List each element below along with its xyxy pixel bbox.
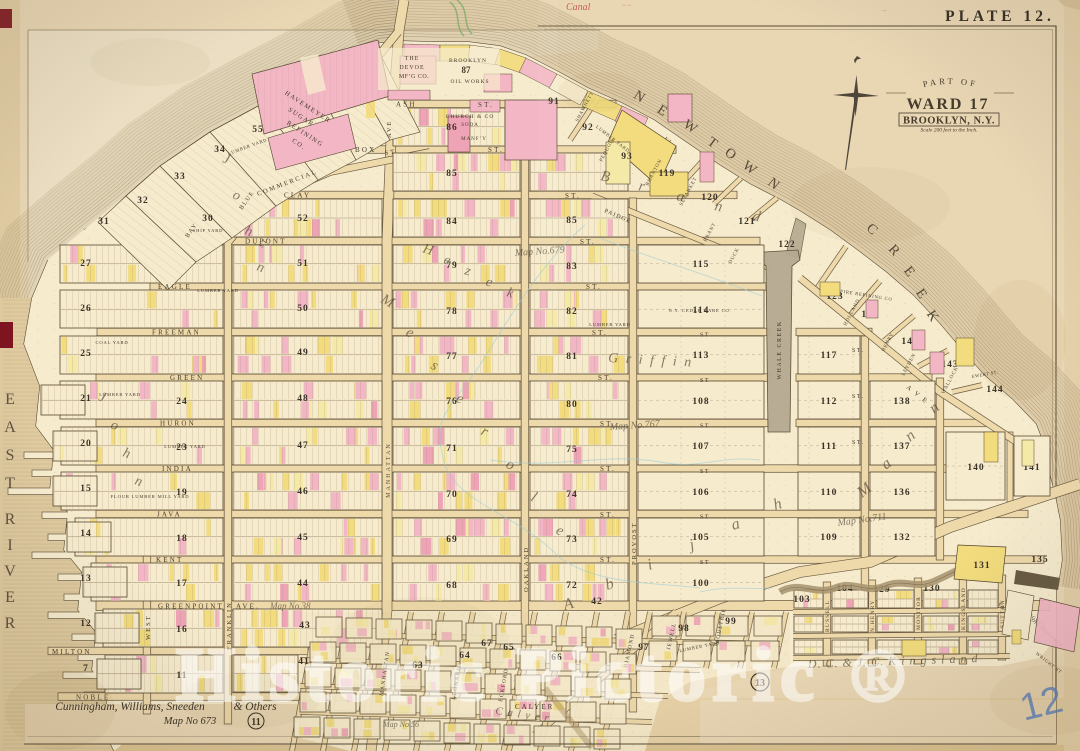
svg-text:Historic Pictoric: Historic Pictoric bbox=[176, 633, 820, 717]
svg-text:R: R bbox=[864, 657, 892, 699]
